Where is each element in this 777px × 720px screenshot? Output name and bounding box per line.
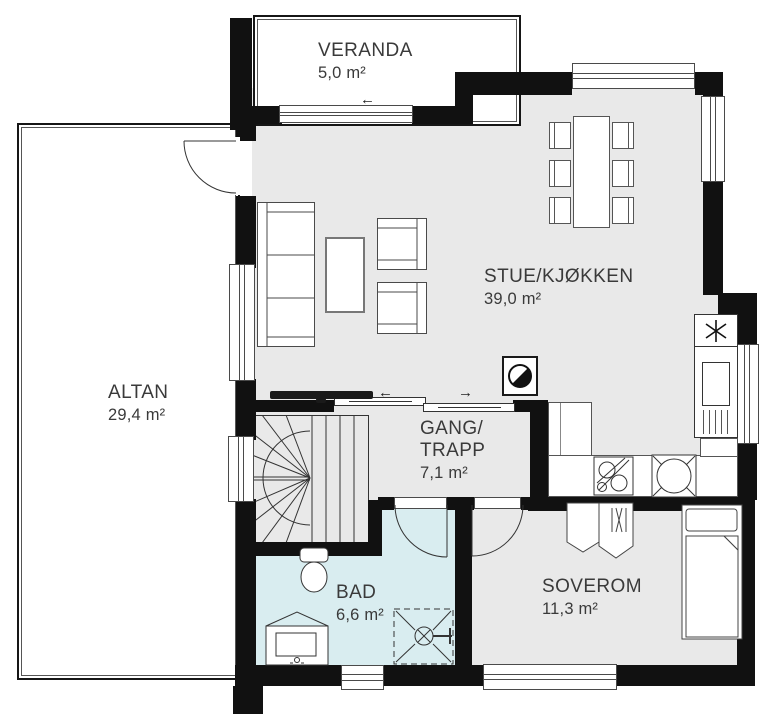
room-area: 5,0 m² xyxy=(318,62,413,84)
armchair xyxy=(377,282,427,334)
label-stue-kjokken: STUE/KJØKKEN 39,0 m² xyxy=(484,266,633,310)
dining-chair xyxy=(612,122,634,149)
room-name: GANG/ xyxy=(420,418,485,440)
wardrobe xyxy=(566,502,635,560)
kitchen-counter xyxy=(548,455,738,497)
dining-chair xyxy=(549,160,571,187)
chair-back xyxy=(628,198,633,223)
slide-direction-arrow: ← xyxy=(378,385,393,400)
label-soverom: SOVEROM 11,3 m² xyxy=(542,576,642,620)
slide-direction-arrow: → xyxy=(458,385,473,400)
wall xyxy=(236,499,256,669)
kitchen-counter xyxy=(700,438,738,457)
chair-back xyxy=(628,123,633,148)
wall xyxy=(233,686,263,714)
armchair xyxy=(377,218,427,270)
oven-door xyxy=(702,362,730,406)
fireplace-icon xyxy=(508,364,532,388)
wall xyxy=(614,665,755,686)
window-east-upper xyxy=(701,96,725,182)
exterior-mask xyxy=(723,58,777,295)
chair-back xyxy=(550,161,555,186)
door-bad xyxy=(392,502,450,560)
room-name: ALTAN xyxy=(108,382,168,404)
wall xyxy=(250,106,282,124)
dining-chair xyxy=(612,160,634,187)
wall xyxy=(236,196,256,268)
wall xyxy=(380,665,487,686)
dishwasher-hatch xyxy=(703,410,731,434)
toilet xyxy=(296,546,332,594)
bed xyxy=(681,504,743,640)
dining-chair xyxy=(549,197,571,224)
door-soverom xyxy=(470,502,528,560)
window-soverom xyxy=(483,664,617,690)
bathroom-vanity xyxy=(264,608,330,667)
wall xyxy=(703,180,723,295)
room-area: 6,6 m² xyxy=(336,604,384,626)
coffee-table xyxy=(325,237,365,313)
tv-stand xyxy=(316,398,326,403)
snowflake-icon xyxy=(694,314,738,348)
wall xyxy=(530,400,548,500)
sliding-door-veranda xyxy=(279,105,413,123)
wall xyxy=(473,72,572,95)
window-north xyxy=(572,63,695,89)
door-altan xyxy=(181,136,241,198)
room-area: 29,4 m² xyxy=(108,404,168,426)
room-area: 39,0 m² xyxy=(484,288,633,310)
wall xyxy=(737,315,757,347)
floor-plan: ← ← → xyxy=(0,0,777,720)
shower xyxy=(391,606,457,667)
room-name: BAD xyxy=(336,582,384,604)
chair-back xyxy=(550,123,555,148)
window-bad xyxy=(341,665,384,690)
label-bad: BAD 6,6 m² xyxy=(336,582,384,626)
room-name: VERANDA xyxy=(318,40,413,62)
chair-back xyxy=(550,198,555,223)
slide-direction-arrow: ← xyxy=(360,92,375,107)
wall xyxy=(230,18,252,130)
wall xyxy=(455,72,473,124)
dining-chair xyxy=(549,122,571,149)
fireplace xyxy=(502,356,538,396)
window-west-stairs xyxy=(228,436,254,502)
label-gang-trapp: GANG/ TRAPP 7,1 m² xyxy=(420,418,485,484)
window-west-stue xyxy=(229,264,255,381)
label-veranda: VERANDA 5,0 m² xyxy=(318,40,413,84)
sofa xyxy=(257,202,315,347)
room-name: TRAPP xyxy=(420,440,485,462)
stove xyxy=(651,454,697,498)
room-name: SOVEROM xyxy=(542,576,642,598)
wall xyxy=(412,106,457,124)
kitchen-sink xyxy=(593,456,634,496)
sliding-door-panel xyxy=(423,403,515,412)
dining-table xyxy=(573,116,610,228)
window-kitchen xyxy=(735,344,759,444)
room-name: STUE/KJØKKEN xyxy=(484,266,633,288)
wall xyxy=(737,442,757,500)
staircase xyxy=(252,415,369,543)
label-altan: ALTAN 29,4 m² xyxy=(108,382,168,426)
chair-back xyxy=(628,161,633,186)
room-area: 7,1 m² xyxy=(420,462,485,484)
room-area: 11,3 m² xyxy=(542,598,642,620)
dining-chair xyxy=(612,197,634,224)
